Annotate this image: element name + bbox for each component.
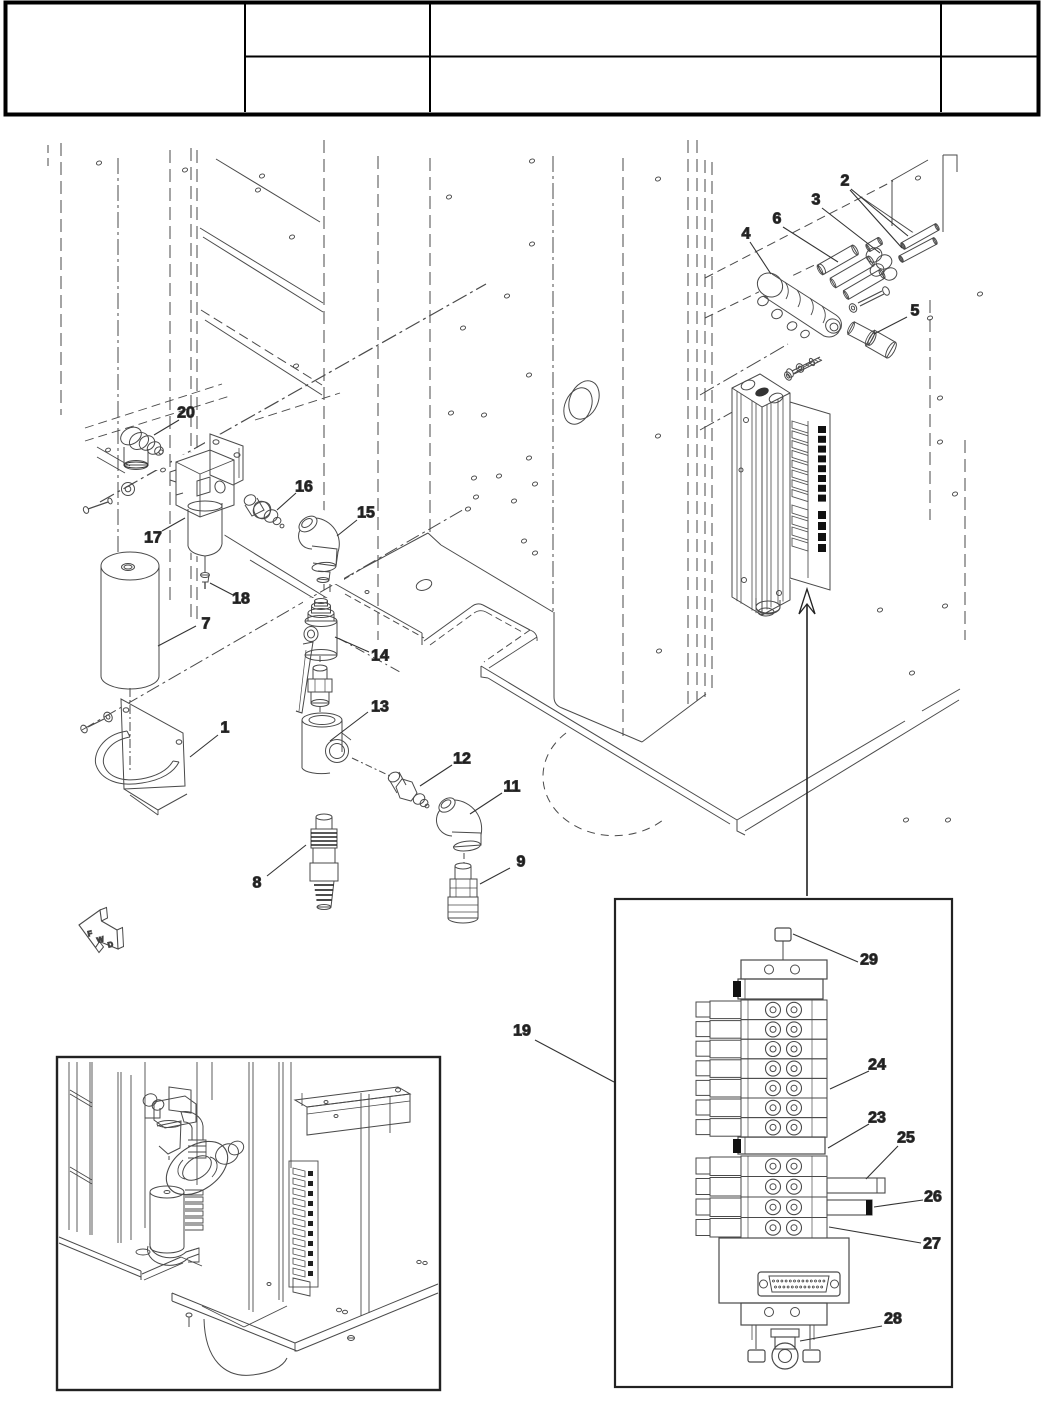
svg-text:24: 24 [868, 1057, 886, 1074]
svg-text:16: 16 [295, 479, 313, 496]
svg-text:4: 4 [742, 226, 751, 243]
svg-text:17: 17 [144, 530, 162, 547]
svg-text:9: 9 [517, 854, 526, 871]
svg-text:20: 20 [177, 405, 195, 422]
svg-text:27: 27 [923, 1236, 941, 1253]
svg-text:1: 1 [221, 720, 230, 737]
svg-text:15: 15 [357, 505, 375, 522]
svg-text:29: 29 [860, 952, 878, 969]
svg-text:28: 28 [884, 1311, 902, 1328]
svg-text:26: 26 [924, 1189, 942, 1206]
svg-text:6: 6 [773, 211, 782, 228]
svg-text:14: 14 [371, 648, 389, 665]
svg-text:23: 23 [868, 1110, 886, 1127]
svg-text:13: 13 [371, 699, 389, 716]
svg-text:18: 18 [232, 591, 250, 608]
svg-text:12: 12 [453, 751, 471, 768]
svg-text:5: 5 [911, 303, 920, 320]
svg-text:19: 19 [513, 1023, 531, 1040]
svg-text:3: 3 [812, 192, 821, 209]
svg-text:2: 2 [841, 173, 850, 190]
svg-text:25: 25 [897, 1130, 915, 1147]
svg-text:7: 7 [202, 616, 211, 633]
svg-text:8: 8 [253, 875, 262, 892]
svg-text:11: 11 [504, 779, 521, 796]
